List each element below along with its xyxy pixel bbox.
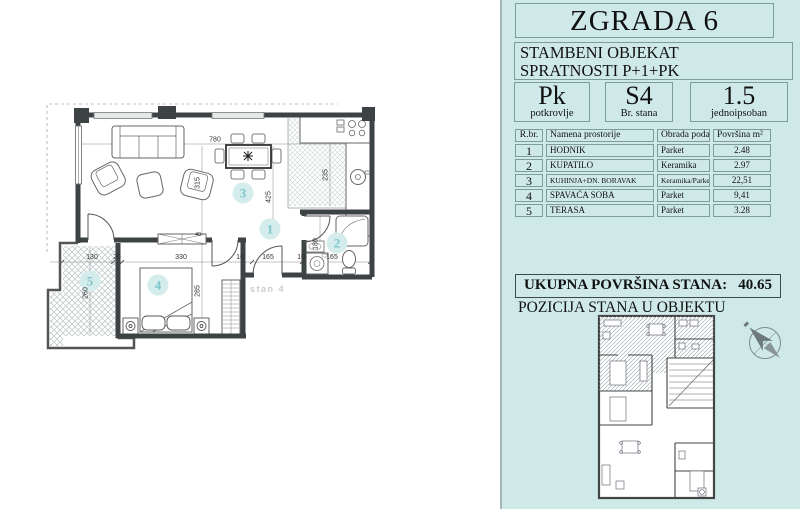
dim-terrace-width: 130 — [86, 254, 98, 261]
subtitle-line-2: SPRATNOSTI P+1+PK — [520, 62, 792, 80]
table-row-name: HODNIK — [546, 144, 654, 157]
dim-bedroom-height: 285 — [195, 285, 202, 297]
position-plan-svg — [592, 313, 800, 507]
sofa — [112, 126, 184, 158]
total-area-box: UKUPNA POVRŠINA STANA: 40.65 — [515, 274, 781, 298]
toilet-icon — [343, 251, 356, 275]
table-row-floor: Parket — [657, 189, 710, 202]
floor-label: potkrovlje — [515, 108, 589, 119]
table-row-area: 2.48 — [713, 144, 771, 157]
unit-number-box: S4 Br. stana — [605, 82, 673, 122]
dining-set — [215, 134, 281, 179]
floor-plan-drawing: 3 1 2 4 5 780 425 235 315 285 260 180 13… — [0, 0, 505, 509]
plant-icon — [243, 151, 253, 161]
col-header-name: Namena prostorije — [546, 129, 654, 142]
table-row-area: 22,51 — [713, 174, 771, 187]
dim-bath-width: 165 — [326, 254, 338, 261]
table-row-name: KUHINJA+DN. BORAVAK — [546, 174, 654, 187]
table-row-area: 2.97 — [713, 159, 771, 172]
total-area-value: 40.65 — [738, 275, 772, 296]
room-number-bath: 2 — [334, 236, 341, 251]
apartment-label: stan 4 — [250, 284, 285, 294]
table-row-area: 9,41 — [713, 189, 771, 202]
room-count-label: jednoipsoban — [691, 108, 787, 119]
building-subtitle: STAMBENI OBJEKAT SPRATNOSTI P+1+PK — [514, 42, 793, 80]
dim-living-height: 425 — [266, 191, 273, 203]
table-row-floor: Parket — [657, 204, 710, 217]
rooms-table: R.br. Namena prostorije Obrada poda Povr… — [515, 129, 771, 217]
nightstand — [123, 318, 138, 334]
compass-north-mark — [743, 321, 749, 327]
table-row-area: 3.28 — [713, 204, 771, 217]
floorplan-flyer: { "colors": { "panel_bg": "#cfe9e9", "pa… — [0, 0, 800, 509]
washing-machine-icon — [306, 253, 328, 274]
room-count: 1.5 — [691, 83, 787, 108]
table-row-num: 1 — [515, 144, 543, 157]
room-number-terrace: 5 — [87, 274, 94, 289]
terrace-door — [88, 214, 114, 240]
table-row-name: SPAVAĆA SOBA — [546, 189, 654, 202]
dim-bath-height: 180 — [313, 238, 320, 250]
dim-bedroom-width: 330 — [175, 254, 187, 261]
pillow — [167, 316, 190, 330]
bathroom-door — [304, 216, 330, 242]
table-row-name: KUPATILO — [546, 159, 654, 172]
subtitle-line-1: STAMBENI OBJEKAT — [520, 44, 792, 62]
dim-door-40: 40 — [195, 232, 201, 238]
col-header-floor: Obrada poda — [657, 129, 710, 142]
col-header-area: Površina m² — [713, 129, 771, 142]
dim-living-left: 315 — [195, 177, 202, 189]
info-panel: ZGRADA 6 STAMBENI OBJEKAT SPRATNOSTI P+1… — [500, 0, 800, 509]
table-row-floor: Parket — [657, 144, 710, 157]
dim-terrace-height: 260 — [83, 287, 90, 299]
dim-top-width: 780 — [209, 137, 221, 144]
pillow — [142, 316, 165, 330]
table-row-num: 5 — [515, 204, 543, 217]
floor-box: Pk potkrovlje — [514, 82, 590, 122]
col-header-num: R.br. — [515, 129, 543, 142]
room-count-box: 1.5 jednoipsoban — [690, 82, 788, 122]
door-arcs — [88, 214, 330, 275]
table-row-num: 2 — [515, 159, 543, 172]
nightstand — [194, 318, 209, 334]
unit-label: Br. stana — [606, 108, 672, 119]
terrace-hatch-step — [50, 292, 63, 346]
total-area-label: UKUPNA POVRŠINA STANA: — [524, 277, 727, 293]
armchair-icon — [89, 159, 128, 197]
wardrobe — [222, 280, 240, 334]
floor-plan-svg: 3 1 2 4 5 780 425 235 315 285 260 180 13… — [0, 0, 505, 509]
table-row-num: 4 — [515, 189, 543, 202]
room-number-living: 3 — [240, 186, 247, 201]
dim-wall-20: 20 — [113, 254, 121, 261]
floor-code: Pk — [515, 83, 589, 108]
table-row-floor: Keramika — [657, 159, 710, 172]
dim-wall-10a: 10 — [236, 254, 244, 261]
dim-wall-10b: 10 — [297, 254, 305, 261]
compass-icon — [734, 313, 791, 369]
dim-kitchen-depth: 235 — [323, 169, 330, 181]
position-plan — [592, 313, 800, 507]
coffee-table — [136, 171, 164, 199]
building-title: ZGRADA 6 — [515, 3, 774, 38]
table-row-floor: Keramika/Parket — [657, 174, 710, 187]
bed — [140, 268, 192, 332]
table-row-name: TERASA — [546, 204, 654, 217]
room-number-hall: 1 — [267, 222, 274, 237]
table-row-num: 3 — [515, 174, 543, 187]
unit-code: S4 — [606, 83, 672, 108]
dim-hall-width: 165 — [262, 254, 274, 261]
room-number-bedroom: 4 — [155, 278, 162, 293]
